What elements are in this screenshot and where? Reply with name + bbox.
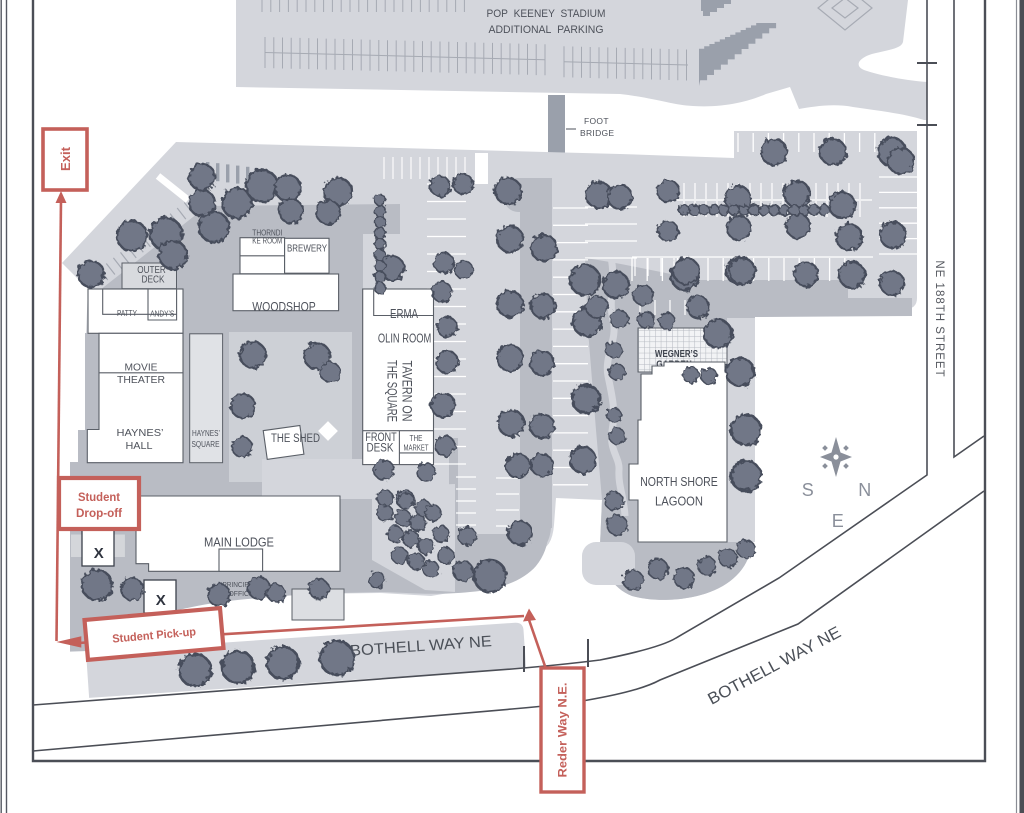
svg-text:MOVIE: MOVIE (125, 363, 158, 374)
svg-text:THE SHED: THE SHED (271, 433, 320, 445)
svg-text:WEGNER’S: WEGNER’S (655, 349, 698, 360)
svg-text:Student: Student (78, 492, 120, 504)
svg-text:WOODSHOP: WOODSHOP (252, 300, 315, 314)
svg-text:THE: THE (410, 433, 423, 443)
svg-text:X: X (156, 592, 166, 609)
svg-text:ADDITIONAL PARKING: ADDITIONAL PARKING (489, 24, 604, 36)
svg-text:N: N (858, 480, 871, 500)
svg-text:DECK: DECK (142, 275, 165, 286)
svg-text:S: S (802, 480, 814, 500)
svg-text:Drop-off: Drop-off (76, 508, 122, 520)
svg-text:FOOT: FOOT (584, 116, 609, 126)
svg-text:X: X (94, 545, 104, 562)
svg-text:DESK: DESK (367, 443, 394, 455)
svg-text:POP KEENEY STADIUM: POP KEENEY STADIUM (487, 8, 606, 20)
svg-text:HAYNES’: HAYNES’ (117, 427, 164, 439)
svg-text:SQUARE: SQUARE (192, 440, 220, 449)
svg-text:E: E (832, 511, 844, 531)
svg-text:Reder Way N.E.: Reder Way N.E. (558, 683, 570, 778)
svg-text:HAYNES’: HAYNES’ (192, 429, 220, 438)
svg-text:HALL: HALL (126, 440, 153, 452)
svg-text:LAGOON: LAGOON (655, 495, 703, 509)
svg-text:ERMA: ERMA (390, 307, 419, 321)
svg-text:NORTH SHORE: NORTH SHORE (640, 475, 718, 489)
svg-text:BREWERY: BREWERY (287, 244, 327, 255)
svg-text:OLIN ROOM: OLIN ROOM (378, 332, 432, 346)
svg-text:KE ROOM: KE ROOM (252, 236, 282, 246)
svg-text:THEATER: THEATER (117, 375, 165, 386)
svg-text:THE SQUARE: THE SQUARE (384, 360, 400, 422)
svg-text:ANDY’S: ANDY’S (150, 310, 174, 319)
svg-text:TAVERN ON: TAVERN ON (400, 361, 416, 422)
svg-text:Exit: Exit (58, 146, 73, 171)
svg-text:MARKET: MARKET (404, 443, 429, 453)
svg-text:NE 188TH STREET: NE 188TH STREET (933, 260, 945, 377)
svg-text:MAIN LODGE: MAIN LODGE (204, 536, 274, 550)
svg-text:BRIDGE: BRIDGE (580, 128, 614, 138)
svg-text:PATTY: PATTY (117, 309, 138, 318)
